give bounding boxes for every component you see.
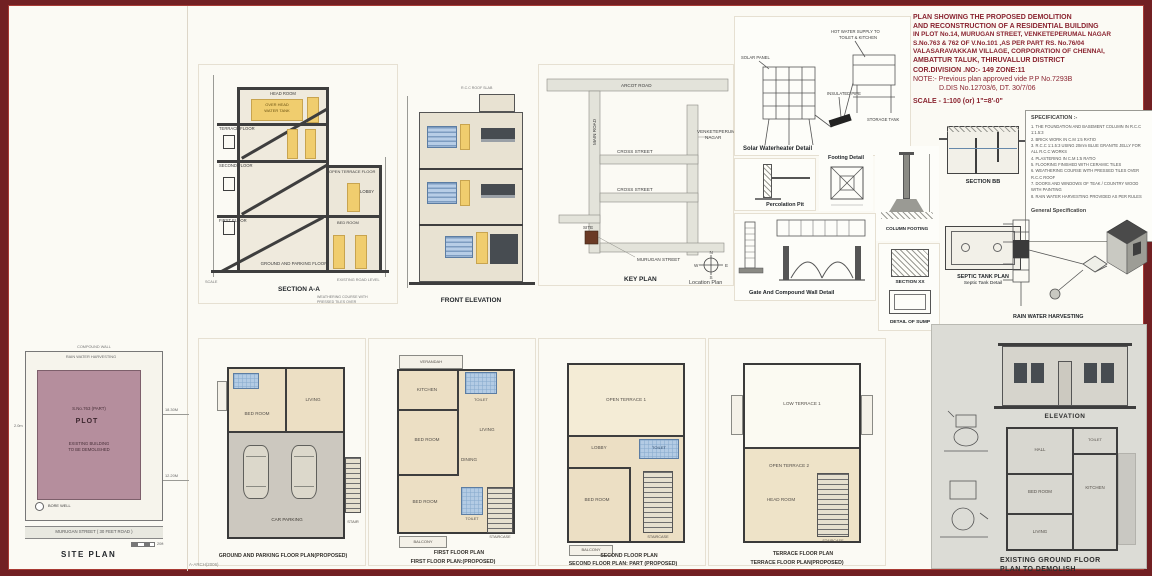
section-second-label: SECOND FLOOR [219,164,253,169]
ground-plan-panel: BED ROOM LIVING CAR PARKING STAIR GROUND… [198,338,366,566]
exist-bed-label: BED ROOM [1028,489,1052,494]
column-base [889,199,924,212]
left-dim-label: 2.0m [14,424,23,428]
exist-elev-window-4 [1101,363,1114,383]
elev-window-ground [445,236,473,258]
terrace-stair [817,473,849,537]
dim-leader-1 [163,414,189,415]
sheet-signature: A-ARCH(2006) [189,562,219,567]
second-toilet-label: TOILET [652,445,666,450]
section-ground-label: GROUND AND PARKING FLOOR [261,261,328,266]
percolation-pit-panel: Percolation Pit [734,158,816,211]
site-plan-caption: SITE PLAN [61,550,116,559]
ground-porch [217,381,227,411]
section-bb-top [947,126,1019,132]
solar-detail-drawing: SOLAR PANEL HOT WATER SUPPLY TO TOILET &… [735,17,910,155]
plot-demolish-label-2: TO BE DEMOLISHED [68,448,109,453]
elev-door-top [460,124,470,150]
section-door-mid-1 [287,129,298,159]
sump-section-drawing [891,249,929,277]
terrace-low-label: LOW TERRACE 1 [783,401,820,406]
first-verandah-label: VERANDAH [420,359,442,364]
nagar-label-1: VENKETEPERUMAL [697,129,735,134]
second-stair-label: STAIRCASE [647,535,668,539]
section-scale-label: SCALE [205,280,217,284]
ground-hatch [881,212,933,219]
section-door-gf-1 [333,235,345,269]
fixture-detail-1 [940,403,992,463]
key-plan-caption: KEY PLAN [624,276,657,283]
road-top-label: ARCOT ROAD [621,83,652,88]
compass-n: N [710,250,713,255]
section-bb-waterline [949,148,1017,149]
title-note-2: D.DIS No.12703/6, DT. 30/7/06 [913,84,1141,93]
plot-label: PLOT [76,418,99,425]
scale-bar [131,542,155,547]
section-oht-label-2: WATER TANK [264,109,289,114]
elev-door-mid [460,180,470,206]
section-bb-pipe-l [939,138,947,140]
section-oht-label-1: OVER HEAD [265,103,289,108]
first-stair [487,487,513,533]
solar-caption: Solar Waterheater Detail [743,146,812,152]
first-balcony-label: BALCONY [413,539,432,544]
percolation-pipe [772,177,810,179]
spec-item-8: 8. RAIN WATER HARVESTING PROVIDED AS PER… [1031,194,1147,200]
compound-wall-label: COMPOUND WALL [77,345,111,349]
section-xx-caption: SECTION XX [895,280,924,285]
ground-stair [345,457,361,513]
terrace-plan-title: TERRACE FLOOR PLAN [773,551,833,557]
section-bedroom-label: BED ROOM [337,221,359,226]
solar-supply-label-2: TOILET & KITCHEN [839,35,877,40]
solar-supply-label-1: HOT WATER SUPPLY TO [831,29,880,34]
borewell-label: BORE WELL [48,504,71,508]
elev-opening-mid [481,184,515,198]
solar-tank-label: STORAGE TANK [867,117,900,122]
percolation-base [755,198,781,200]
title-line-3: IN PLOT No.14, MURUGAN STREET, VENKETEPE… [913,31,1141,39]
dim-label-1: 18.30M [165,408,178,412]
section-wall-mid [326,87,329,273]
section-wall-left [237,87,240,273]
section-door-lobby [347,183,360,212]
section-road-level-label: EXISTING ROAD LEVEL [337,278,380,282]
front-elevation-panel: R.C.C ROOF SLAB FRONT ELEVATION [401,84,541,312]
exist-hall-label: HALL [1035,447,1046,452]
second-plan-title: SECOND FLOOR PLAN [600,553,657,559]
exist-elev-base [994,406,1136,409]
exist-kitchen-label: KITCHEN [1085,485,1104,490]
existing-building-panel: ELEVATION HALL TOILET KITCHEN BED ROOM L… [931,324,1147,569]
road-left-label: MAIN ROAD [592,118,597,145]
fixture-detail-2 [936,475,992,545]
column-cap [899,152,914,155]
left-strip-divider [187,6,188,571]
section-note-2: PRESSED TILES OVER [317,300,356,304]
title-block: PLAN SHOWING THE PROPOSED DEMOLITION AND… [909,10,1145,118]
car-icon-2 [291,445,317,499]
first-plan-title: FIRST FLOOR PLAN [434,550,484,556]
second-bed-label: BED ROOM [584,497,609,502]
scale-bar-label: 20ft [157,542,164,546]
key-plan-map: N S E W ARCOT ROAD MAIN ROAD VENKETEPERU… [539,65,735,287]
cross1-label: CROSS STREET [617,149,653,154]
existing-elevation-caption: ELEVATION [1044,413,1085,420]
first-bed1-label: BED ROOM [414,437,439,442]
title-line-1: PLAN SHOWING THE PROPOSED DEMOLITION [913,13,1141,22]
elev-door-ground [476,232,488,264]
first-toilet1 [465,372,497,394]
rwh-caption: RAIN WATER HARVESTING [1013,314,1083,320]
section-door-gf-2 [355,235,367,269]
first-stair-label: STAIRCASE [489,535,510,539]
terrace-plan-caption: TERRACE FLOOR PLAN(PROPOSED) [750,560,843,566]
terrace-head-label: HEAD ROOM [767,497,795,502]
title-scale: SCALE - 1:100 (or) 1"=8'-0" [913,97,1141,106]
title-line-6: AMBATTUR TALUK, THIRUVALLUR DISTRICT [913,56,1141,65]
blueprint-screenshot: { "title_block": { "lines": [ "PLAN SHOW… [0,0,1152,576]
exist-plan-shadow [1118,453,1136,545]
exist-wall-h2 [1008,513,1074,515]
percolation-caption: Percolation Pit [766,202,804,208]
spec-item-1: 1. THE FOUNDATION AND BASEMENT COLUMN IN… [1031,124,1147,137]
section-aa-panel: HEAD ROOM OVER HEAD WATER TANK TERRACE F… [198,64,398,304]
exist-wall-v1 [1072,429,1074,551]
first-bed2-label: BED ROOM [412,499,437,504]
first-toilet2 [461,487,483,515]
first-toilet1-label: TOILET [474,397,488,402]
terrace-proj-left [731,395,743,435]
terrace-stair-label: STAIRCASE [822,539,843,543]
ground-bed-label: BED ROOM [244,411,269,416]
second-terrace-label: OPEN TERRACE 1 [606,397,646,402]
title-line-2: AND RECONSTRUCTION OF A RESIDENTIAL BUIL… [913,22,1141,31]
terrace-plan-panel: LOW TERRACE 1 OPEN TERRACE 2 HEAD ROOM S… [708,338,886,566]
terrace-open-label: OPEN TERRACE 2 [769,463,809,468]
sump-caption: DETAIL OF SUMP [890,320,930,325]
elev-slab-1 [419,168,523,170]
second-lobby-label: LOBBY [591,445,606,450]
title-line-4: S.No.763 & 762 OF V.No.101 ,AS PER PART … [913,40,1141,48]
section-parapet-left-1 [223,135,235,149]
first-living-label: LIVING [479,427,494,432]
solar-detail-panel: SOLAR PANEL HOT WATER SUPPLY TO TOILET &… [734,16,911,156]
section-parapet-left-3 [223,221,235,235]
spec-heading: SPECIFICATION :- [1031,115,1147,121]
solar-pipe-label: INSULATED PIPE [827,91,861,96]
elev-ground-line [409,282,535,285]
footing-plan-drawing [819,163,873,211]
nagar-label-2: NAGAR [705,135,722,140]
rwh-drawing: RAIN WATER HARVESTING [955,202,1151,330]
spec-item-3: 3. R.C.C 1:1.5:3 USING 20mm BLUE GRANITE… [1031,143,1147,156]
elev-headroom-block [479,94,515,112]
sump-panel: SECTION XX DETAIL OF SUMP [878,243,940,331]
second-plan-caption: SECOND FLOOR PLAN: PART (PROPOSED) [569,561,678,567]
exist-elev-window-3 [1084,363,1097,383]
first-plan-panel: VERANDAH TOILET KITCHEN BED ROOM LIVING … [368,338,536,566]
title-note-1: NOTE:- Previous plan approved vide P.P N… [913,75,1141,84]
elev-slab-2 [419,224,523,226]
section-wing-slab [326,165,382,168]
column-dim [929,154,930,212]
gate-wall-caption: Gate And Compound Wall Detail [749,290,835,296]
second-balcony-label: BALCONY [581,547,600,552]
elev-opening-ground [490,234,518,264]
exist-elev-door [1058,361,1072,406]
spec-item-6: 6. WEATHERING COURSE WITH PRESSED TILES … [1031,168,1147,181]
section-dim-line-right [385,157,386,277]
footing-detail-panel: Footing Detail [819,154,873,211]
site-street-label: MURUGAN STREET [637,257,680,262]
footing-caption: Footing Detail [828,155,864,161]
title-line-7: COR.DIVISION .NO:- 149 ZONE:11 [913,66,1141,75]
section-wall-right [379,165,382,273]
first-kitchen-label: KITCHEN [417,387,437,392]
section-terrace-label: TERRACE FLOOR [219,127,255,132]
plot-survey-label: S.No.763 (PART) [72,406,106,411]
existing-caption-2: PLAN TO DEMOLISH [1000,566,1076,573]
site-plan-panel: COMPOUND WALL RAIN WATER HARVESTING S.No… [13,344,185,570]
first-wall-h1 [399,409,457,411]
elev-dim-line [407,96,408,288]
site-road-label: MURUGAN STREET ( 30 FEET ROAD ) [55,530,132,535]
section-aa-caption: SECTION A-A [278,286,320,293]
ground-parking-label: CAR PARKING [271,517,302,522]
key-plan-site-marker [585,231,598,244]
second-wall-h2 [569,467,631,469]
column-shaft [903,154,910,199]
percolation-wall [763,164,772,198]
section-bb-caption: SECTION BB [966,179,1001,185]
borewell-icon [35,502,44,511]
site-rwh-label: RAIN WATER HARVESTING [66,355,116,359]
elev-opening-top [481,128,515,142]
first-dining-label: DINING [461,457,477,462]
terrace-proj-right [861,395,873,435]
site-label: SITE [583,225,593,230]
key-plan-compass [699,255,723,275]
car-icon-1 [243,445,269,499]
section-door-mid-2 [305,129,316,159]
exist-living-label: LIVING [1033,529,1047,534]
compass-e: E [725,263,728,268]
site-plot [37,370,141,500]
first-toilet2-label: TOILET [465,517,478,521]
exist-toilet-label: TOILET [1088,437,1102,442]
section-dim-line-left [213,75,214,277]
exist-wall-h1 [1008,473,1074,475]
ground-living-label: LIVING [305,397,320,402]
drawing-sheet: COMPOUND WALL RAIN WATER HARVESTING S.No… [8,5,1144,570]
section-head-slab [237,87,329,90]
ground-plan-caption: GROUND AND PARKING FLOOR PLAN(PROPOSED) [219,553,348,559]
exist-wall-h3 [1074,453,1116,455]
existing-caption-1: EXISTING GROUND FLOOR [1000,557,1101,564]
first-plan-caption: FIRST FLOOR PLAN:(PROPOSED) [411,559,496,565]
ground-wall-v [285,369,287,431]
title-line-5: VALASARAVAKKAM VILLAGE, CORPORATION OF C… [913,48,1141,57]
section-bb-tank [947,126,1019,174]
ground-stair-label: STAIR [347,519,358,524]
first-wall-v1 [457,371,459,474]
section-lobby-label: LOBBY [360,190,374,195]
second-wall-v1 [629,467,631,541]
gate-wall-drawing: Gate And Compound Wall Detail [735,214,875,300]
gate-wall-panel: Gate And Compound Wall Detail [734,213,876,301]
section-ground-slab [211,270,389,273]
front-elevation-caption: FRONT ELEVATION [441,297,501,304]
cross2-label: CROSS STREET [617,187,653,192]
second-stair [643,471,673,533]
section-head-room-label: HEAD ROOM [270,92,296,97]
exist-elev-window-1 [1014,363,1027,383]
elev-note: R.C.C ROOF SLAB [461,86,492,90]
ground-bed-icon [233,373,259,389]
section-bb-baffle-2 [997,132,999,162]
key-plan-panel: N S E W ARCOT ROAD MAIN ROAD VENKETEPERU… [538,64,734,286]
column-footing-caption: COLUMN FOOTING [886,226,928,231]
second-plan-panel: OPEN TERRACE 1 TOILET LOBBY BED ROOM STA… [538,338,706,566]
dim-label-2: 12.20M [165,474,178,478]
column-footing-panel: COLUMN FOOTING [875,146,939,241]
sump-plan-inner [894,294,926,310]
section-open-terrace-label: OPEN TERRACE FLOOR [329,170,375,175]
first-wall-h2 [399,474,459,476]
rwh-panel: RAIN WATER HARVESTING [955,202,1151,330]
compass-w: W [694,263,699,268]
section-bb-baffle-1 [975,138,977,174]
location-plan-caption: Location Plan [689,280,722,286]
solar-panel-label: SOLAR PANEL [741,55,770,60]
exist-elev-window-2 [1031,363,1044,383]
spec-item-7: 7. DOORS AND WINDOWS OF TEAK / COUNTRY W… [1031,181,1147,194]
elev-window-mid [427,182,457,204]
dim-leader-2 [163,480,189,481]
section-note-1: WEATHERING COURSE WITH [317,295,368,299]
second-wall-h1 [569,435,683,437]
elev-window-top [427,126,457,148]
section-parapet-left-2 [223,177,235,191]
